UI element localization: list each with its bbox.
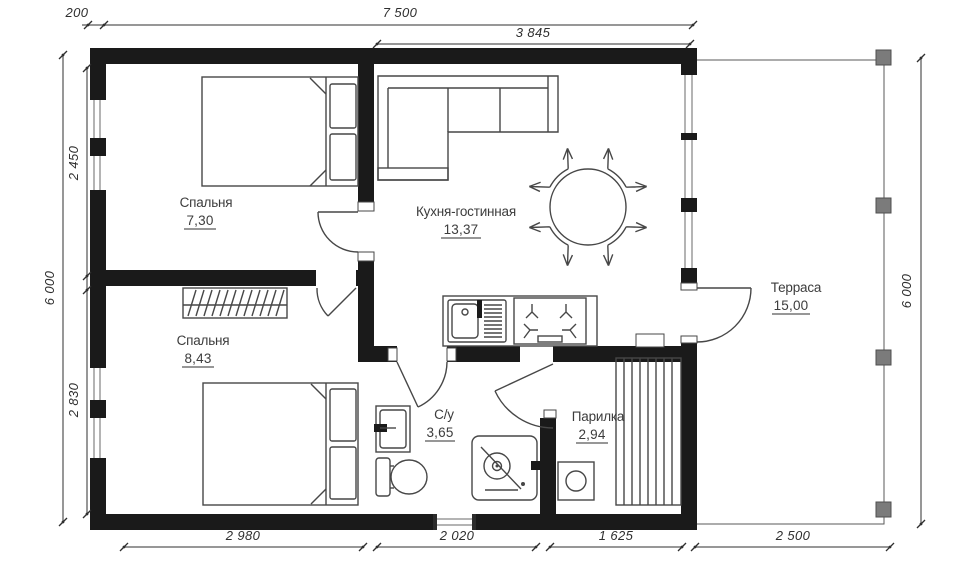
interior-walls: [106, 64, 697, 514]
dim-bottom-terrace: 2 500: [775, 528, 811, 543]
label-bedroom2: Спальня 8,43: [177, 333, 230, 367]
bed-bedroom1: [202, 77, 358, 186]
door-bedroom2: [317, 288, 356, 316]
dimensions-left: 6 000 2 450 2 830: [42, 51, 91, 526]
room-area: 13,37: [444, 222, 479, 237]
terrace-post: [876, 350, 891, 365]
window-left-bedroom1: [90, 100, 106, 190]
room-name: Спальня: [177, 333, 230, 348]
label-bathroom: С/у 3,65: [425, 407, 455, 441]
room-name: С/у: [434, 407, 454, 422]
stove: [514, 298, 586, 344]
dimensions-top: 200 7 500 3 845: [65, 5, 697, 48]
room-area: 3,65: [426, 425, 453, 440]
terrace-post: [876, 50, 891, 65]
door-bedroom1: [318, 202, 374, 261]
floor-plan-page: 200 7 500 3 845 6 000 2 450 2 830 6 000 …: [0, 0, 962, 562]
room-name: Спальня: [180, 195, 233, 210]
dim-right-total: 6 000: [899, 273, 914, 308]
label-bedroom1: Спальня 7,30: [180, 195, 233, 229]
dimensions-bottom: 2 980 2 020 1 625 2 500: [120, 528, 894, 551]
door-terrace: [681, 283, 751, 343]
label-terrace: Терраса 15,00: [771, 280, 822, 314]
dimensions-right: 6 000: [899, 54, 925, 528]
kitchen-counter: [443, 296, 597, 346]
bathroom-sink: [374, 406, 410, 452]
dim-bottom-sauna: 1 625: [599, 528, 634, 543]
label-sauna: Парилка 2,94: [572, 409, 625, 443]
room-area: 7,30: [186, 213, 213, 228]
wardrobe: [183, 288, 287, 318]
dim-top-wall: 200: [65, 5, 89, 20]
window-left-bedroom2: [90, 368, 106, 458]
room-name: Терраса: [771, 280, 822, 295]
wall-niche: [636, 334, 664, 347]
dim-left-bedroom2: 2 830: [66, 382, 81, 418]
sofa: [378, 76, 558, 180]
door-sauna: [495, 364, 556, 428]
dim-bottom-bath: 2 020: [439, 528, 475, 543]
room-name: Кухня-гостинная: [416, 204, 516, 219]
room-area: 8,43: [184, 351, 211, 366]
window-right-kitchen: [681, 75, 697, 285]
terrace-post: [876, 198, 891, 213]
room-area: 2,94: [578, 427, 605, 442]
room-name: Парилка: [572, 409, 625, 424]
bed-bedroom2: [203, 383, 358, 505]
dim-top-total: 7 500: [383, 5, 418, 20]
label-kitchen: Кухня-гостинная 13,37: [416, 204, 516, 238]
sauna-bench: [616, 358, 681, 505]
sauna-stove: [558, 462, 594, 500]
shower: [472, 436, 542, 500]
dim-bottom-bedroom: 2 980: [225, 528, 261, 543]
door-bathroom: [388, 348, 456, 407]
dim-left-bedroom1: 2 450: [66, 145, 81, 181]
kitchen-sink: [448, 300, 506, 342]
exterior-walls: [90, 48, 697, 530]
toilet: [376, 458, 427, 496]
dim-left-total: 6 000: [42, 270, 57, 305]
dining-table: [529, 148, 646, 265]
terrace-post: [876, 502, 891, 517]
floor-plan-canvas: 200 7 500 3 845 6 000 2 450 2 830 6 000 …: [0, 0, 962, 562]
dim-top-kitchen: 3 845: [516, 25, 551, 40]
room-area: 15,00: [774, 298, 809, 313]
